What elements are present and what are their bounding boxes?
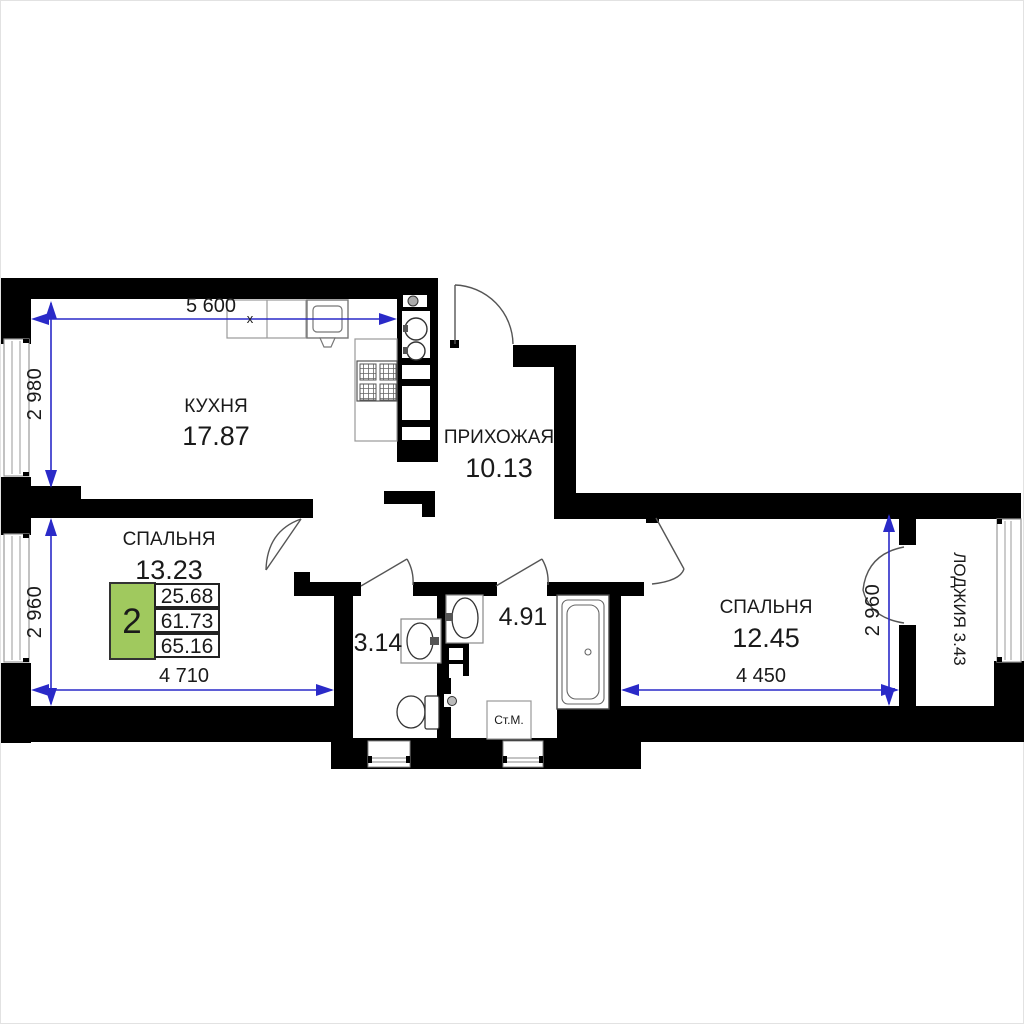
washing-machine-icon: Ст.М. bbox=[487, 701, 531, 739]
wc-area: 3.14 bbox=[354, 629, 403, 657]
summary-area-without-loggia: 61.73 bbox=[161, 610, 214, 633]
dim-bedroom1-width: 4 710 bbox=[159, 665, 209, 687]
bedroom1-name: СПАЛЬНЯ bbox=[123, 529, 216, 550]
hallway-name: ПРИХОЖАЯ bbox=[444, 427, 554, 448]
floor-plan: Ст.М. 5 600 х 2 980 2 960 4 710 4 450 2 … bbox=[1, 1, 1024, 1025]
bedroom1-area: 13.23 bbox=[135, 555, 203, 585]
washing-machine-label: Ст.М. bbox=[494, 713, 524, 727]
kitchen-hob-icon bbox=[307, 300, 348, 347]
vent-shaft-2 bbox=[503, 741, 543, 767]
bedroom2-area: 12.45 bbox=[732, 623, 800, 653]
vent-shaft-1 bbox=[368, 741, 410, 767]
bedroom2-door bbox=[652, 518, 684, 584]
dim-kitchen-width: 5 600 bbox=[186, 295, 236, 317]
bedroom2-name: СПАЛЬНЯ bbox=[720, 597, 813, 618]
bedroom1-door bbox=[266, 519, 301, 570]
summary-total-area: 65.16 bbox=[161, 635, 214, 658]
dim-break-mark: х bbox=[247, 311, 254, 326]
dim-bedroom2-depth: 2 960 bbox=[862, 584, 884, 637]
bathtub-icon bbox=[557, 595, 609, 709]
dim-bedroom2-width: 4 450 bbox=[736, 665, 786, 687]
kitchen-name: КУХНЯ bbox=[184, 396, 247, 417]
entrance-door bbox=[455, 285, 513, 344]
walls bbox=[1, 278, 1024, 769]
loggia-label: ЛОДЖИЯ 3.43 bbox=[950, 552, 969, 666]
stove-icon bbox=[357, 361, 397, 401]
apartment-summary-box: 2 25.68 61.73 65.16 bbox=[110, 583, 219, 659]
wc-sink-icon bbox=[401, 619, 441, 663]
summary-living-area: 25.68 bbox=[161, 585, 214, 608]
loggia-window bbox=[997, 519, 1021, 662]
kitchen-area: 17.87 bbox=[182, 421, 250, 451]
wc-door bbox=[361, 559, 413, 586]
room-labels: КУХНЯ 17.87 ПРИХОЖАЯ 10.13 СПАЛЬНЯ 13.23… bbox=[123, 396, 969, 666]
bathroom-area: 4.91 bbox=[499, 603, 548, 631]
dim-bedroom1-depth: 2 960 bbox=[24, 586, 46, 639]
hallway-area: 10.13 bbox=[465, 453, 533, 483]
bathroom-sink-icon bbox=[445, 595, 483, 643]
dim-kitchen-depth: 2 980 bbox=[24, 368, 46, 421]
kitchen-shaft-niches bbox=[402, 295, 430, 440]
bathroom-door bbox=[496, 559, 548, 586]
summary-rooms-count: 2 bbox=[122, 602, 141, 641]
toilet-icon bbox=[397, 696, 439, 729]
floor-plan-page: Ст.М. 5 600 х 2 980 2 960 4 710 4 450 2 … bbox=[0, 0, 1024, 1024]
